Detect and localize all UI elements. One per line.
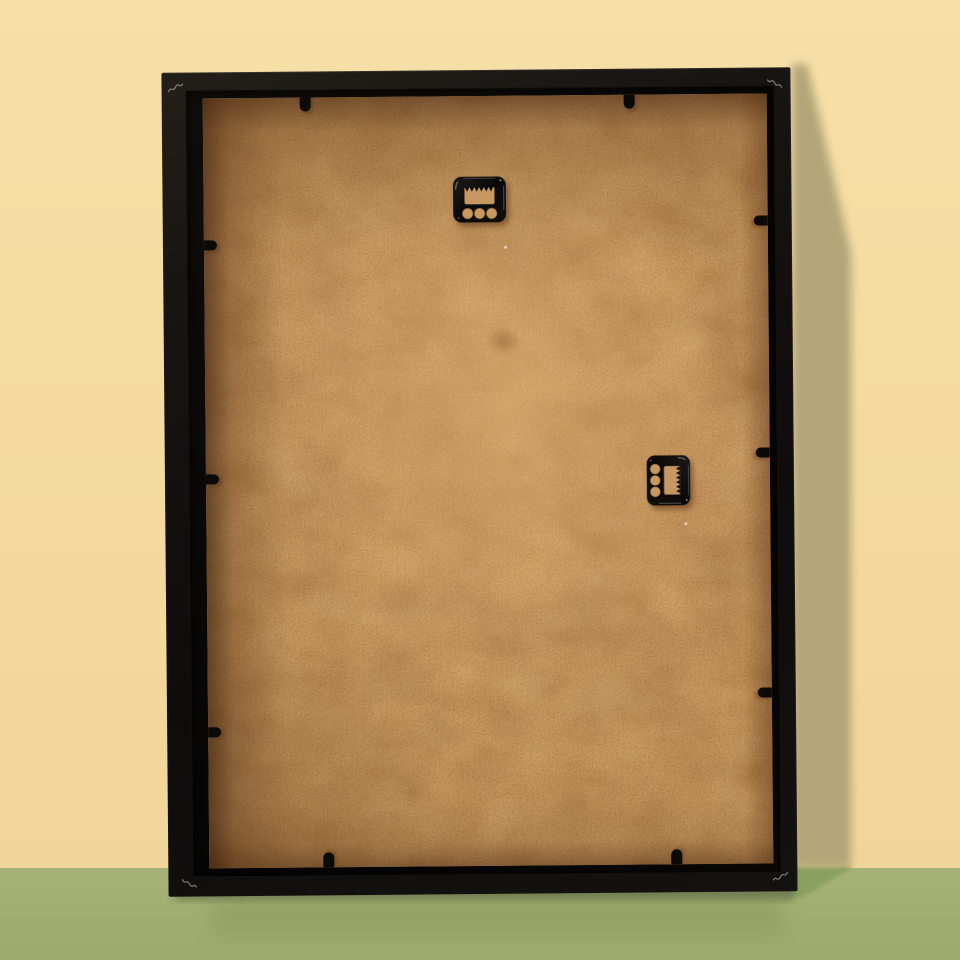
flexi-clip-right	[758, 687, 773, 697]
corner-joint-mark-bottom-left	[181, 876, 197, 889]
flexi-clip-bottom	[323, 852, 334, 868]
wall-cast-shadow	[792, 64, 851, 868]
dust-speck	[504, 246, 507, 249]
flexi-clip-top	[300, 96, 311, 111]
sawtooth-hanger-side	[642, 452, 695, 508]
flexi-clip-left	[207, 727, 221, 737]
flexi-clip-left	[205, 474, 219, 484]
flexi-clip-top	[624, 94, 635, 109]
dust-speck	[684, 522, 687, 525]
sawtooth-hanger-top	[451, 172, 507, 227]
scene	[0, 0, 960, 960]
flexi-clip-left	[203, 240, 217, 250]
flexi-clip-right	[756, 447, 771, 457]
flexi-clip-bottom	[671, 849, 682, 865]
backing-board	[203, 93, 774, 868]
flexi-clip-right	[754, 215, 769, 225]
frame-back	[161, 67, 797, 896]
corner-joint-mark-top-left	[167, 82, 183, 95]
